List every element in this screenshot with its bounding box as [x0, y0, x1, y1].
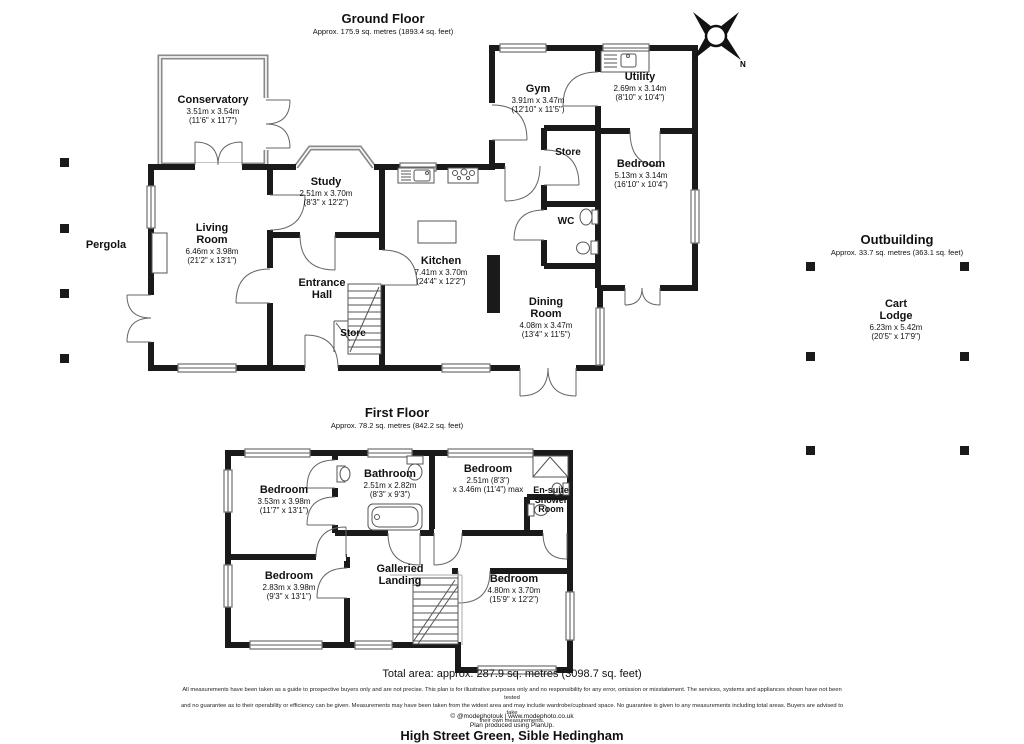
outbuilding-title: Outbuilding Approx. 33.7 sq. metres (363… [777, 233, 1017, 258]
room-label-conservatory: Conservatory 3.51m x 3.54m (11'6" x 11'7… [148, 95, 278, 125]
room-label-galleried-landing: Galleried Landing [355, 564, 445, 588]
room-label-bedroom-ff-left: Bedroom 2.83m x 3.98m (9'3" x 13'1") [234, 571, 344, 601]
cart-lodge-posts [806, 262, 969, 455]
property-address: High Street Green, Sible Hedingham [312, 728, 712, 743]
kitchen-island [418, 221, 456, 243]
room-label-bedroom-ff-right: Bedroom 4.80m x 3.70m (15'9" x 12'2") [459, 574, 569, 604]
room-label-wc: WC [541, 217, 591, 228]
wc-toilet [577, 242, 590, 254]
floorplan-page: N Ground Floor Approx. 175.9 sq. metres … [0, 0, 1024, 744]
room-label-dining-room: Dining Room 4.08m x 3.47m (13'4" x 11'5"… [486, 297, 606, 339]
room-label-bedroom-ff-front: Bedroom 3.53m x 3.98m (11'7" x 13'1") [229, 485, 339, 515]
pergola-posts [60, 158, 69, 363]
room-label-living-room: Living Room 6.46m x 3.98m (21'2" x 13'1"… [152, 223, 272, 265]
ground-floor-title: Ground Floor Approx. 175.9 sq. metres (1… [233, 12, 533, 37]
photographer-credit: © @modephotouk | www.modephoto.co.uk [312, 712, 712, 721]
compass-icon: N [693, 12, 746, 69]
bay-window [296, 148, 374, 167]
room-label-store-rear: Store [538, 148, 598, 159]
room-label-entrance-hall: Entrance Hall [262, 278, 382, 302]
room-label-kitchen: Kitchen 7.41m x 3.70m (24'4" x 12'2") [381, 256, 501, 286]
bathroom-toilet [407, 456, 423, 464]
total-area-text: Total area: approx. 287.9 sq. metres (30… [262, 668, 762, 680]
room-label-store-hall: Store [323, 329, 383, 340]
room-label-study: Study 2.51m x 3.70m (8'3" x 12'2") [271, 177, 381, 207]
room-label-utility: Utility 2.69m x 3.14m (8'10" x 10'4") [580, 72, 700, 102]
room-label-bedroom-ground: Bedroom 5.13m x 3.14m (16'10" x 10'4") [581, 159, 701, 189]
room-label-pergola: Pergola [66, 240, 146, 252]
room-label-cart-lodge: Cart Lodge 6.23m x 5.42m (20'5" x 17'9") [836, 299, 956, 341]
first-floor-title: First Floor Approx. 78.2 sq. metres (842… [247, 406, 547, 431]
room-label-ensuite: En-suite Shower Room [519, 486, 583, 515]
compass-north-label: N [740, 60, 746, 69]
